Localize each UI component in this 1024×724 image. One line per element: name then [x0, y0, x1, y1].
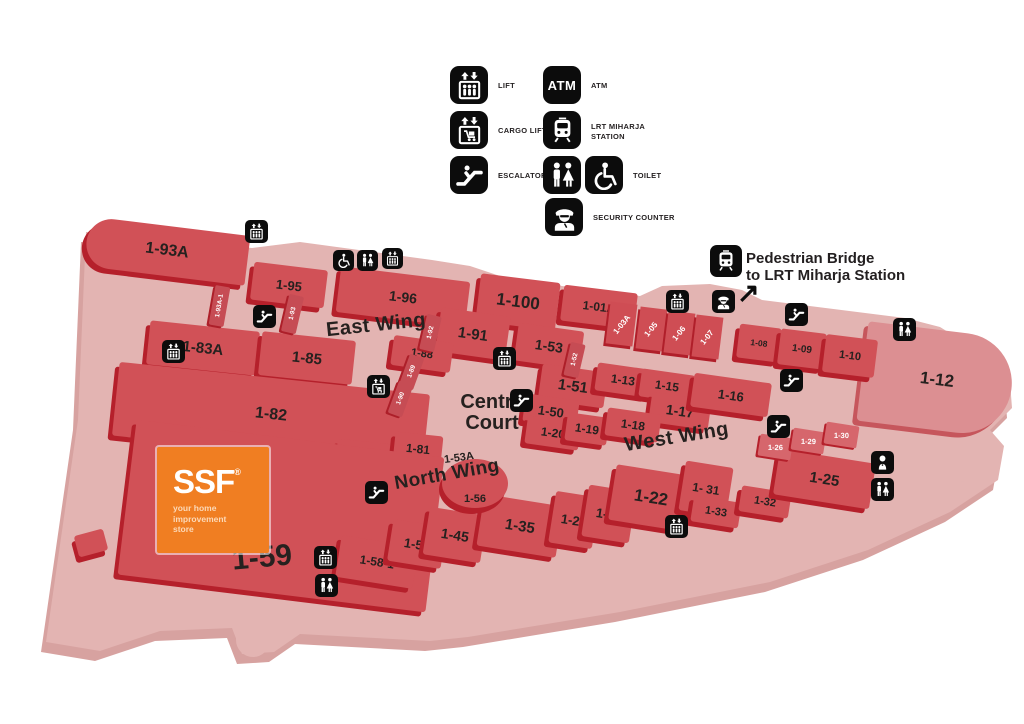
unit-1-05: 1-05 [636, 307, 668, 352]
toilet-icon [871, 478, 894, 501]
cargo-lift-icon [367, 375, 390, 398]
centre-court-line2: Court [447, 413, 537, 434]
lift-icon [162, 340, 185, 363]
toilet-icon [315, 574, 338, 597]
lrt-train-icon [710, 245, 742, 277]
bridge-direction-arrow-icon: ↗ [737, 278, 760, 309]
toilet-icon [893, 318, 916, 341]
lift-icon [314, 546, 337, 569]
unit-1-03A: 1-03A [606, 302, 638, 347]
lift-icon [666, 290, 689, 313]
legend-lrt-station-label: LRT MIHARJA STATION [591, 122, 649, 142]
legend-lift-icon [450, 66, 488, 104]
pedestrian-bridge-line2: to LRT Miharja Station [746, 267, 905, 284]
toilet-icon [357, 250, 378, 271]
legend-toilet-icon [543, 156, 581, 194]
escalator-icon [510, 389, 533, 412]
unit-1-19: 1-19 [564, 412, 609, 446]
legend-atm-label: ATM [591, 81, 608, 91]
legend-escalator-icon [450, 156, 488, 194]
legend-security-counter-label: SECURITY COUNTER [593, 213, 675, 223]
lift-icon [493, 347, 516, 370]
escalator-icon [767, 415, 790, 438]
lift-icon [665, 515, 688, 538]
baby-room-icon [871, 451, 894, 474]
unit-1-08: 1-08 [736, 324, 782, 363]
legend-escalator-label: ESCALATOR [498, 171, 547, 181]
legend-cargo-lift-label: CARGO LIFT [498, 126, 547, 136]
unit-1-07: 1-07 [692, 315, 724, 360]
legend-atm-icon: ATM [543, 66, 581, 104]
ssf-store-logo: SSF® your home improvement store [157, 447, 269, 553]
escalator-icon [785, 303, 808, 326]
ssf-store-tagline: your home improvement store [173, 503, 235, 535]
unit-1-06: 1-06 [664, 311, 696, 356]
legend-disabled-toilet-icon [585, 156, 623, 194]
unit-1-09: 1-09 [777, 328, 827, 369]
legend-security-counter-icon [545, 198, 583, 236]
legend-lift-label: LIFT [498, 81, 515, 91]
lift-icon [382, 248, 403, 269]
legend-cargo-lift-icon [450, 111, 488, 149]
legend-lrt-station-icon [543, 111, 581, 149]
legend-toilet-label: TOILET [633, 171, 661, 181]
pedestrian-bridge-note: Pedestrian Bridge to LRT Miharja Station [746, 250, 905, 285]
pedestrian-bridge-line1: Pedestrian Bridge [746, 250, 905, 267]
unit-1-10: 1-10 [822, 334, 878, 378]
disabled-toilet-icon [333, 250, 354, 271]
ssf-store-name: SSF® [173, 465, 269, 498]
escalator-icon [365, 481, 388, 504]
escalator-icon [253, 305, 276, 328]
lift-icon [245, 220, 268, 243]
security-counter-icon [712, 290, 735, 313]
escalator-icon [780, 369, 803, 392]
